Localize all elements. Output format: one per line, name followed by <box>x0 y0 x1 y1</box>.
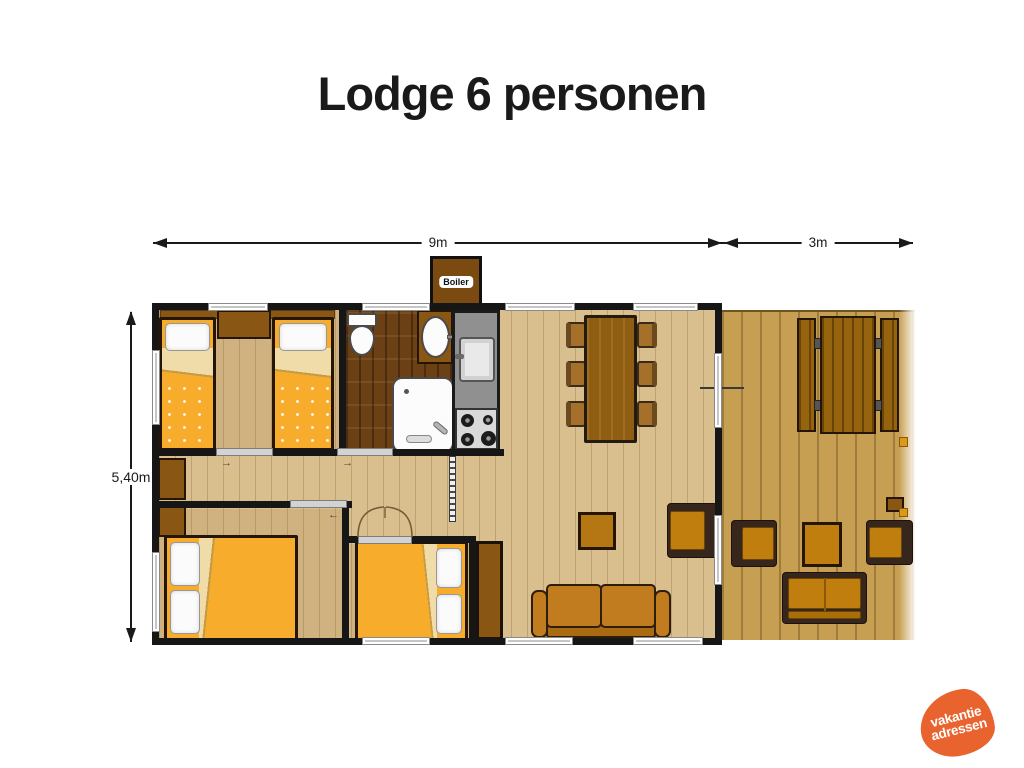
wall <box>159 449 504 456</box>
window <box>505 303 575 311</box>
floorplan-page: Lodge 6 personen 9m 3m 5,40m Boiler <box>0 0 1024 768</box>
cushion-seam <box>824 578 826 611</box>
logo-text: vakantie adressen <box>926 704 987 743</box>
door-swing-line <box>700 387 744 389</box>
dimension-label: 5,40m <box>105 469 158 485</box>
window <box>208 303 268 311</box>
arrow-right-icon <box>708 238 722 248</box>
sofa-backrest <box>788 611 861 619</box>
outdoor-armchair <box>731 520 777 567</box>
window <box>633 637 703 645</box>
arrow-down-icon <box>126 628 136 642</box>
deck-decor <box>899 508 908 517</box>
armchair-cushion <box>869 527 902 558</box>
outdoor-armchair <box>866 520 913 565</box>
door-swing-arrow: → <box>221 458 232 468</box>
window <box>362 303 430 311</box>
armchair-cushion <box>742 527 774 560</box>
window <box>505 637 573 645</box>
arrow-right-icon <box>899 238 913 248</box>
window <box>362 637 430 645</box>
deck-decor <box>899 437 908 447</box>
window <box>633 303 698 311</box>
boiler-label: Boiler <box>439 276 473 288</box>
door-swing-arrow: → <box>342 458 353 468</box>
arrow-up-icon <box>126 311 136 325</box>
picnic-bench <box>880 318 899 432</box>
outdoor-sofa <box>782 572 867 624</box>
wall <box>339 310 346 456</box>
french-doors-icon <box>355 504 415 538</box>
sliding-door <box>337 448 393 456</box>
dimension-label: 9m <box>422 235 455 251</box>
vakantieadressen-logo: vakantie adressen <box>916 685 998 761</box>
wall <box>469 536 476 638</box>
boiler-box: Boiler <box>430 256 482 308</box>
arrow-left-icon <box>153 238 167 248</box>
accordion-door <box>449 456 456 522</box>
picnic-table <box>820 316 876 434</box>
dimension-label: 3m <box>802 235 835 251</box>
window <box>152 350 160 425</box>
terrace-door <box>714 353 722 428</box>
door-swing-arrow: ← <box>328 510 339 520</box>
page-title: Lodge 6 personen <box>318 66 707 121</box>
exterior-wall <box>152 303 722 645</box>
terrace-door <box>714 515 722 585</box>
arrow-left-icon <box>724 238 738 248</box>
window <box>152 552 160 632</box>
sliding-door <box>290 500 347 508</box>
outdoor-table <box>802 522 842 567</box>
deck-edge-fade <box>899 310 916 640</box>
wall <box>342 501 349 638</box>
sliding-door <box>216 448 273 456</box>
picnic-bench <box>797 318 816 432</box>
